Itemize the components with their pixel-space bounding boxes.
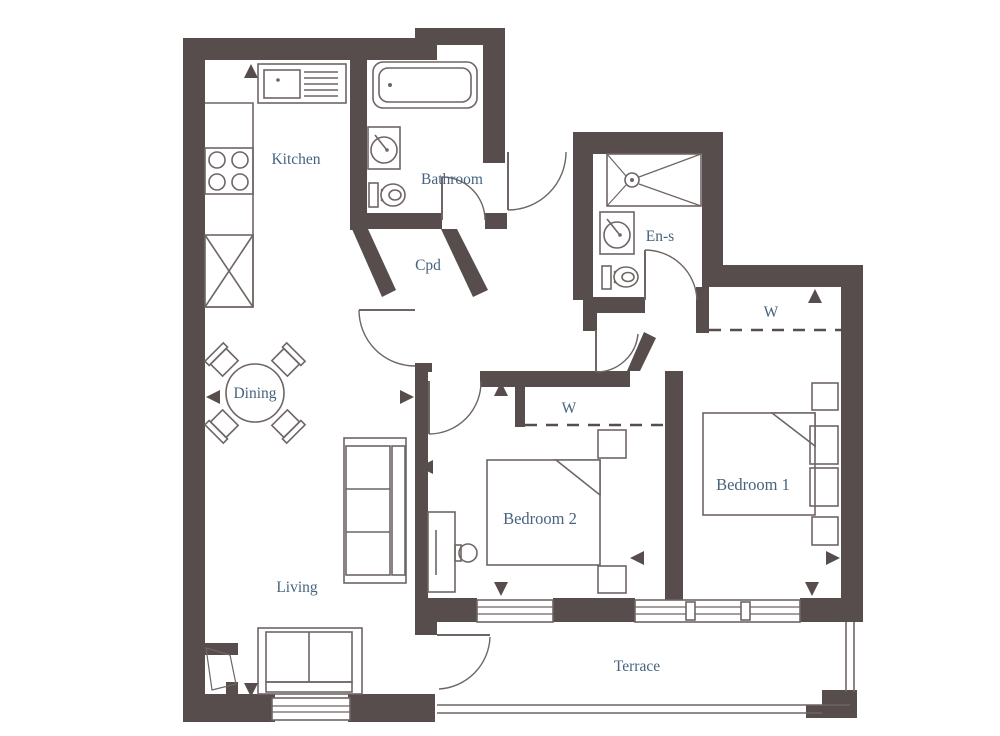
worktop-icon (205, 103, 253, 307)
wall-ensuite-north (573, 132, 723, 154)
room-label-bedroom1: Bedroom 1 (716, 475, 790, 494)
floor-plan-drawing: Kitchen Bathroom Cpd En-s Dining Living … (0, 0, 1000, 736)
shower-icon (607, 154, 701, 206)
bedroom1-furniture (703, 330, 841, 545)
desk-icon (428, 512, 477, 592)
marker-up-icon (808, 289, 822, 303)
wall-left (183, 38, 205, 700)
room-label-bathroom: Bathroom (421, 171, 483, 188)
washbasin-icon (368, 127, 400, 169)
window-mullion (686, 602, 695, 620)
wall-bedroom1-door-diagonal (627, 332, 656, 371)
sink-with-drainer-icon (258, 64, 346, 103)
wall-wardrobe2-stub (515, 387, 525, 427)
room-label-cupboard: Cpd (415, 257, 441, 274)
wall-bedroom2-north (480, 371, 630, 387)
living-door (359, 310, 415, 366)
wall-entrance-left (483, 45, 505, 163)
floor-plan: Kitchen Bathroom Cpd En-s Dining Living … (0, 0, 1000, 736)
room-label-living: Living (276, 579, 318, 596)
room-label-terrace: Terrace (614, 658, 660, 675)
wall-bedroom1-north (702, 265, 862, 287)
wall-ensuite-south (583, 297, 645, 313)
wall-top-kitchen (183, 38, 415, 60)
wall-cupboard-left-diagonal (352, 229, 396, 297)
wall-cupboard-right-diagonal (441, 229, 488, 297)
bath-icon (373, 62, 477, 108)
wall-bedroom2-east (665, 371, 683, 600)
wall-ensuite-west (573, 132, 593, 300)
wall-bathroom-south-stub (485, 213, 507, 229)
wall-ensuite-east (702, 132, 723, 277)
wall-bottom-bedroom1 (800, 598, 863, 622)
entrance-door (508, 152, 566, 210)
marker-left-icon (206, 390, 220, 404)
wall-kitchen-bathroom (350, 55, 367, 230)
terrace-door (437, 635, 490, 689)
marker-up-icon (244, 64, 258, 78)
wall-right (841, 265, 863, 618)
room-label-dining: Dining (233, 385, 276, 402)
marker-down-icon (494, 582, 508, 596)
wall-terrace-door-jamb (415, 598, 437, 635)
tall-unit-icon (205, 235, 253, 307)
wall-bottom-between-windows (553, 598, 635, 622)
kitchen-fixtures (205, 64, 346, 307)
marker-right-icon (400, 390, 414, 404)
wall-bottom-left (183, 694, 275, 722)
bedroom1-window (635, 600, 800, 622)
wall-bath-alcove-left (415, 45, 437, 60)
wall-wardrobe1-stub (696, 287, 709, 333)
wall-hall-jamb (583, 313, 597, 331)
bedside-table-icon (598, 430, 626, 458)
marker-left-icon (630, 551, 644, 565)
ensuite-door (645, 250, 697, 300)
room-label-wardrobe1: W (764, 304, 779, 321)
bedside-table-icon (812, 383, 838, 410)
wall-top-notch (415, 28, 505, 45)
marker-down-icon (805, 582, 819, 596)
bedroom2-window (477, 600, 553, 622)
bedside-table-icon (598, 566, 626, 593)
wall-bathroom-south (350, 213, 442, 229)
bedroom2-door (429, 381, 481, 434)
window-mullion (741, 602, 750, 620)
living-window (272, 698, 350, 720)
double-bed-icon (703, 413, 815, 515)
wall-bottom-bedroom2-corner (437, 598, 477, 622)
living-furniture (206, 438, 406, 694)
toilet-icon (602, 266, 638, 289)
room-label-wardrobe2: W (562, 400, 577, 417)
sofa-3-seat-icon (344, 438, 406, 583)
room-label-ensuite: En-s (646, 228, 674, 245)
room-label-bedroom2: Bedroom 2 (503, 509, 577, 528)
washbasin-icon (600, 212, 634, 254)
wall-bottom-mid (348, 694, 435, 722)
room-label-kitchen: Kitchen (271, 151, 320, 168)
wall-living-bedroom2 (415, 363, 428, 600)
hob-icon (205, 148, 253, 194)
marker-right-icon (826, 551, 840, 565)
toilet-icon (369, 183, 405, 207)
bedside-table-icon (812, 517, 838, 545)
sofa-2-seat-icon (258, 628, 362, 694)
